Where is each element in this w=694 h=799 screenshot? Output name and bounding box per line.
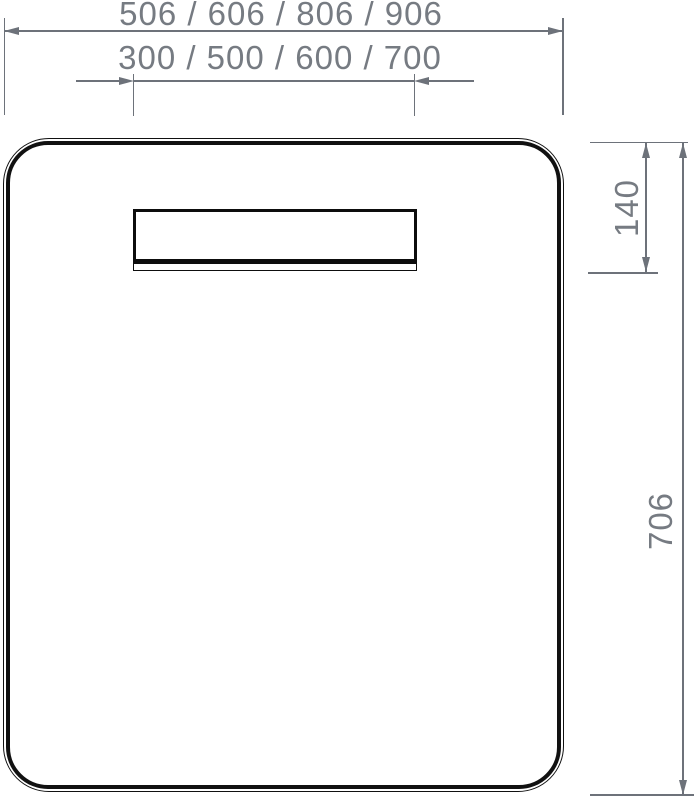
top-to-strip-dimension-label: 140 [610,148,644,268]
arrowhead-left-icon [4,27,19,35]
strip-width-dimension-label: 300 / 500 / 600 / 700 [0,41,560,75]
arrowhead-up-icon [679,143,687,158]
strip-width-extension-line-right [414,74,416,116]
strip-bottom-extension-line [588,272,658,274]
bottom-extension-line [590,794,694,796]
arrowhead-down-icon [679,780,687,795]
light-strip [133,209,417,264]
top-extension-line [590,142,688,144]
outer-width-dimension-line [4,30,563,32]
strip-width-tail-left [76,80,122,82]
strip-width-tail-right [428,80,474,82]
strip-width-dimension-line [133,80,415,82]
light-strip-shelf [133,264,417,271]
outer-width-dimension-label: 506 / 606 / 806 / 906 [1,0,561,31]
drawing-canvas: 506 / 606 / 806 / 906 300 / 500 / 600 / … [0,0,694,799]
strip-width-extension-line-left [133,74,135,116]
arrowhead-right-icon [548,27,563,35]
outer-width-extension-line-right [562,18,564,115]
total-height-dimension-label: 706 [644,461,678,581]
arrowhead-left-icon [414,77,429,85]
top-to-strip-dimension-line [645,142,647,273]
total-height-dimension-line [682,142,684,795]
